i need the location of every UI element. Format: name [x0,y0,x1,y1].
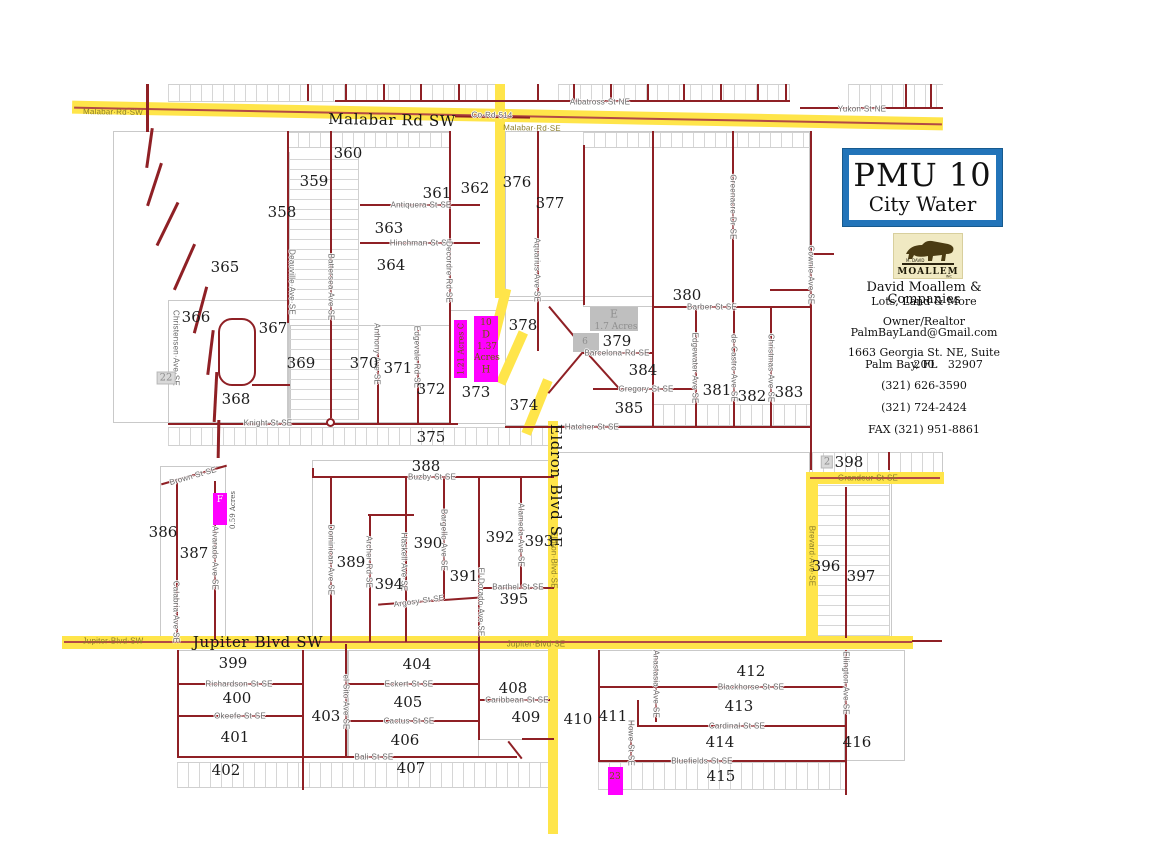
moallem-logo: MOALLEM M. DAVID INC [893,233,963,279]
street-label: Cownie·Ave·SE [807,246,816,305]
section-number: 362 [461,179,490,197]
street-label: Richardson·St·SE [205,680,272,689]
road-segment [683,84,685,101]
road-segment [177,756,517,758]
street-label: Edgewater·Ave·SE [691,332,700,403]
phone-secondary: (321) 724-2424 [843,402,1005,414]
section-number: 383 [775,383,804,401]
street-label: Grandeur·St·SE [838,474,898,483]
section-number: 392 [486,528,515,546]
section-number: 407 [397,759,426,777]
section-number: 382 [738,387,767,405]
road-segment [810,452,812,470]
address-line2: Palm Bay, FL 32907 [843,359,1005,371]
section-number: 358 [268,203,297,221]
road-segment [312,468,314,478]
loop-road [218,318,256,386]
road-segment [217,420,221,458]
road-segment [930,84,932,108]
section-number: 371 [384,359,413,377]
street-label: Howe·St·SE [627,720,636,766]
road-segment [888,452,890,470]
road-segment [252,384,290,386]
section-number: 394 [375,575,404,593]
street-label: Edgevale·Rd·SE [413,326,422,388]
lot-column-strip [289,152,359,420]
street-label: Calabria·Ave·SE [172,581,181,643]
street-label: Blackhorse·St·SE [718,683,784,692]
section-number: 377 [536,194,565,212]
parcel-label: 1.37 [477,342,497,352]
section-number: 403 [312,707,341,725]
section-number: 366 [182,308,211,326]
section-number: 415 [707,767,736,785]
street-label: el·Sito·Ave·SE [342,674,351,729]
parcel-label: H [482,365,491,376]
street-label: Brevard·Ave·SE [808,526,817,586]
gray-section-tag: 2 [821,456,833,469]
road-segment [307,84,309,101]
section-number: 404 [403,655,432,673]
section-number: 387 [180,544,209,562]
section-number: 406 [391,731,420,749]
road-segment [720,84,722,101]
street-label: Cardinal·St·SE [709,722,765,731]
section-number: 368 [222,390,251,408]
road-segment [583,145,585,305]
road-segment [845,487,847,638]
city-block-outline [505,131,584,301]
parcel-label: Acres [474,353,500,363]
section-number: 376 [503,173,532,191]
street-label: Alvarado·Ave·SE [211,526,220,590]
pmu-title: PMU 10 [849,157,996,193]
section-number: 361 [423,184,452,202]
section-number: 373 [462,383,491,401]
section-number: 391 [450,567,479,585]
section-number: 365 [211,258,240,276]
street-label: Bluefields·St·SE [671,757,732,766]
road-segment [458,84,460,101]
section-number: 386 [149,523,178,541]
street-label: Knight·St·SE [244,419,293,428]
parcel-label: 1.21 Acres C [457,323,466,375]
street-label: Anastasia·Ave·SE [652,650,661,718]
parcel-label: 6 [582,337,588,347]
city-block-outline [556,452,810,640]
road-segment [478,644,480,740]
street-label: Okeefe·St·SE [214,712,266,721]
section-number: 408 [499,679,528,697]
road-segment [383,84,385,101]
street-label: Yukon·St·NE [838,105,886,114]
section-number: 398 [835,453,864,471]
section-number: 390 [414,534,443,552]
section-number: 364 [377,256,406,274]
parcel-label: 10 [480,318,491,328]
section-number: 409 [512,708,541,726]
parcel-label: 1.7 Acres [595,322,638,332]
phone-primary: (321) 626-3590 [843,380,1005,392]
parcel-label: D [482,330,490,341]
road-segment [757,84,759,101]
street-label: Greenacre·Dr·SE [729,174,738,239]
street-label: Archer·Rd·SE [365,536,374,588]
road-segment [302,650,304,790]
street-label: Malabar·Rd·SE [503,123,561,133]
section-number: 378 [509,316,538,334]
lot-row-strip [652,404,810,426]
street-label: Eckert·St·SE [385,680,434,689]
city-block-outline [583,131,810,307]
road-segment [177,650,179,757]
pmu-title-box: PMU 10 City Water [843,149,1002,226]
company-tagline: Lots, Land & More [843,296,1005,308]
section-number: 389 [337,553,366,571]
section-number: 396 [812,557,841,575]
major-road-label: Eldron Blvd SE [547,424,565,548]
section-number: 401 [221,728,250,746]
section-number: 369 [287,354,316,372]
section-number: 367 [259,319,288,337]
section-number: 399 [219,654,248,672]
road-segment [368,514,414,516]
section-number: 410 [564,710,593,728]
street-label: Deauville·Ave·SE [288,249,297,315]
parcel-label: 23 [609,772,620,782]
section-number: 411 [599,707,628,725]
road-segment [637,700,639,726]
road-segment [652,131,654,307]
section-number: 414 [706,733,735,751]
road-segment [420,84,422,101]
section-number: 395 [500,590,529,608]
road-segment [522,738,554,740]
lion-icon: MOALLEM M. DAVID INC [894,234,962,278]
info-panel: PMU 10 City Water MOALLEM M. DAVID INC D… [843,149,1005,449]
street-label: Aquarius·Ave·SE [533,238,542,302]
section-number: 379 [603,332,632,350]
section-number: 393 [525,532,554,550]
section-number: 388 [412,457,441,475]
section-number: 374 [510,396,539,414]
street-label: Decordre·Rd·SE [445,241,454,303]
street-label: Ellington·Ave·SE [842,651,851,715]
road-segment [537,84,539,101]
pmu-subtitle: City Water [849,193,996,215]
svg-text:INC: INC [946,275,953,279]
road-segment [146,84,149,132]
street-label: Bali·St·SE [355,753,394,762]
street-label: Jupiter·Blvd·SE [507,640,566,649]
parcel-label: F [217,495,223,505]
street-label: Gregory·St·SE [618,385,673,394]
section-number: 397 [847,567,876,585]
contact-email: PalmBayLand@Gmail.com [843,327,1005,339]
street-label: Dominican·Ave·SE [327,525,336,596]
major-road-label: Jupiter Blvd SW [193,633,323,651]
street-label: Co·Rd·514 [471,110,512,120]
lot-row-strip [287,132,450,148]
section-number: 416 [843,733,872,751]
pmu10-map-page: { "panel": { "title_line1": "PMU 10", "t… [0,0,1152,864]
section-number: 370 [350,354,379,372]
section-number: 363 [375,219,404,237]
road-segment [905,84,907,108]
parcel-label: 0.59 Acres [229,491,237,529]
section-number: 402 [212,761,241,779]
section-number: 360 [334,144,363,162]
road-segment [345,84,347,101]
section-number: 413 [725,697,754,715]
road-segment [168,423,458,425]
street-label: Battersea·Ave·SE [327,253,336,320]
street-label: Albatross·St·NE [570,98,630,107]
cul-de-sac [326,418,335,427]
gray-section-tag: 22 [157,372,176,385]
road-segment [912,640,942,642]
section-number: 381 [703,381,732,399]
section-number: 375 [417,428,446,446]
svg-text:M. DAVID: M. DAVID [906,258,924,263]
street-label: Malabar·Rd·SW [83,107,143,117]
section-number: 384 [629,361,658,379]
parcel-label: E [610,308,618,321]
street-label: Hinchman·St·SE [390,239,452,248]
lot-row-strip [168,427,558,446]
major-road-label: Malabar Rd SW [328,110,456,130]
section-number: 372 [417,380,446,398]
road-centerline [64,641,912,643]
road-segment [598,650,600,761]
lot-row-strip [583,132,810,148]
street-label: Jupiter·Blvd·SW [83,637,144,646]
street-label: Cactus·St·SE [384,717,435,726]
section-number: 359 [300,172,329,190]
road-segment [647,84,649,101]
fax-number: FAX (321) 951-8861 [843,424,1005,436]
road-segment [785,84,787,101]
street-label: Hatcher·St·SE [565,423,619,432]
section-number: 380 [673,286,702,304]
section-number: 385 [615,399,644,417]
section-number: 400 [223,689,252,707]
section-number: 412 [737,662,766,680]
section-number: 405 [394,693,423,711]
